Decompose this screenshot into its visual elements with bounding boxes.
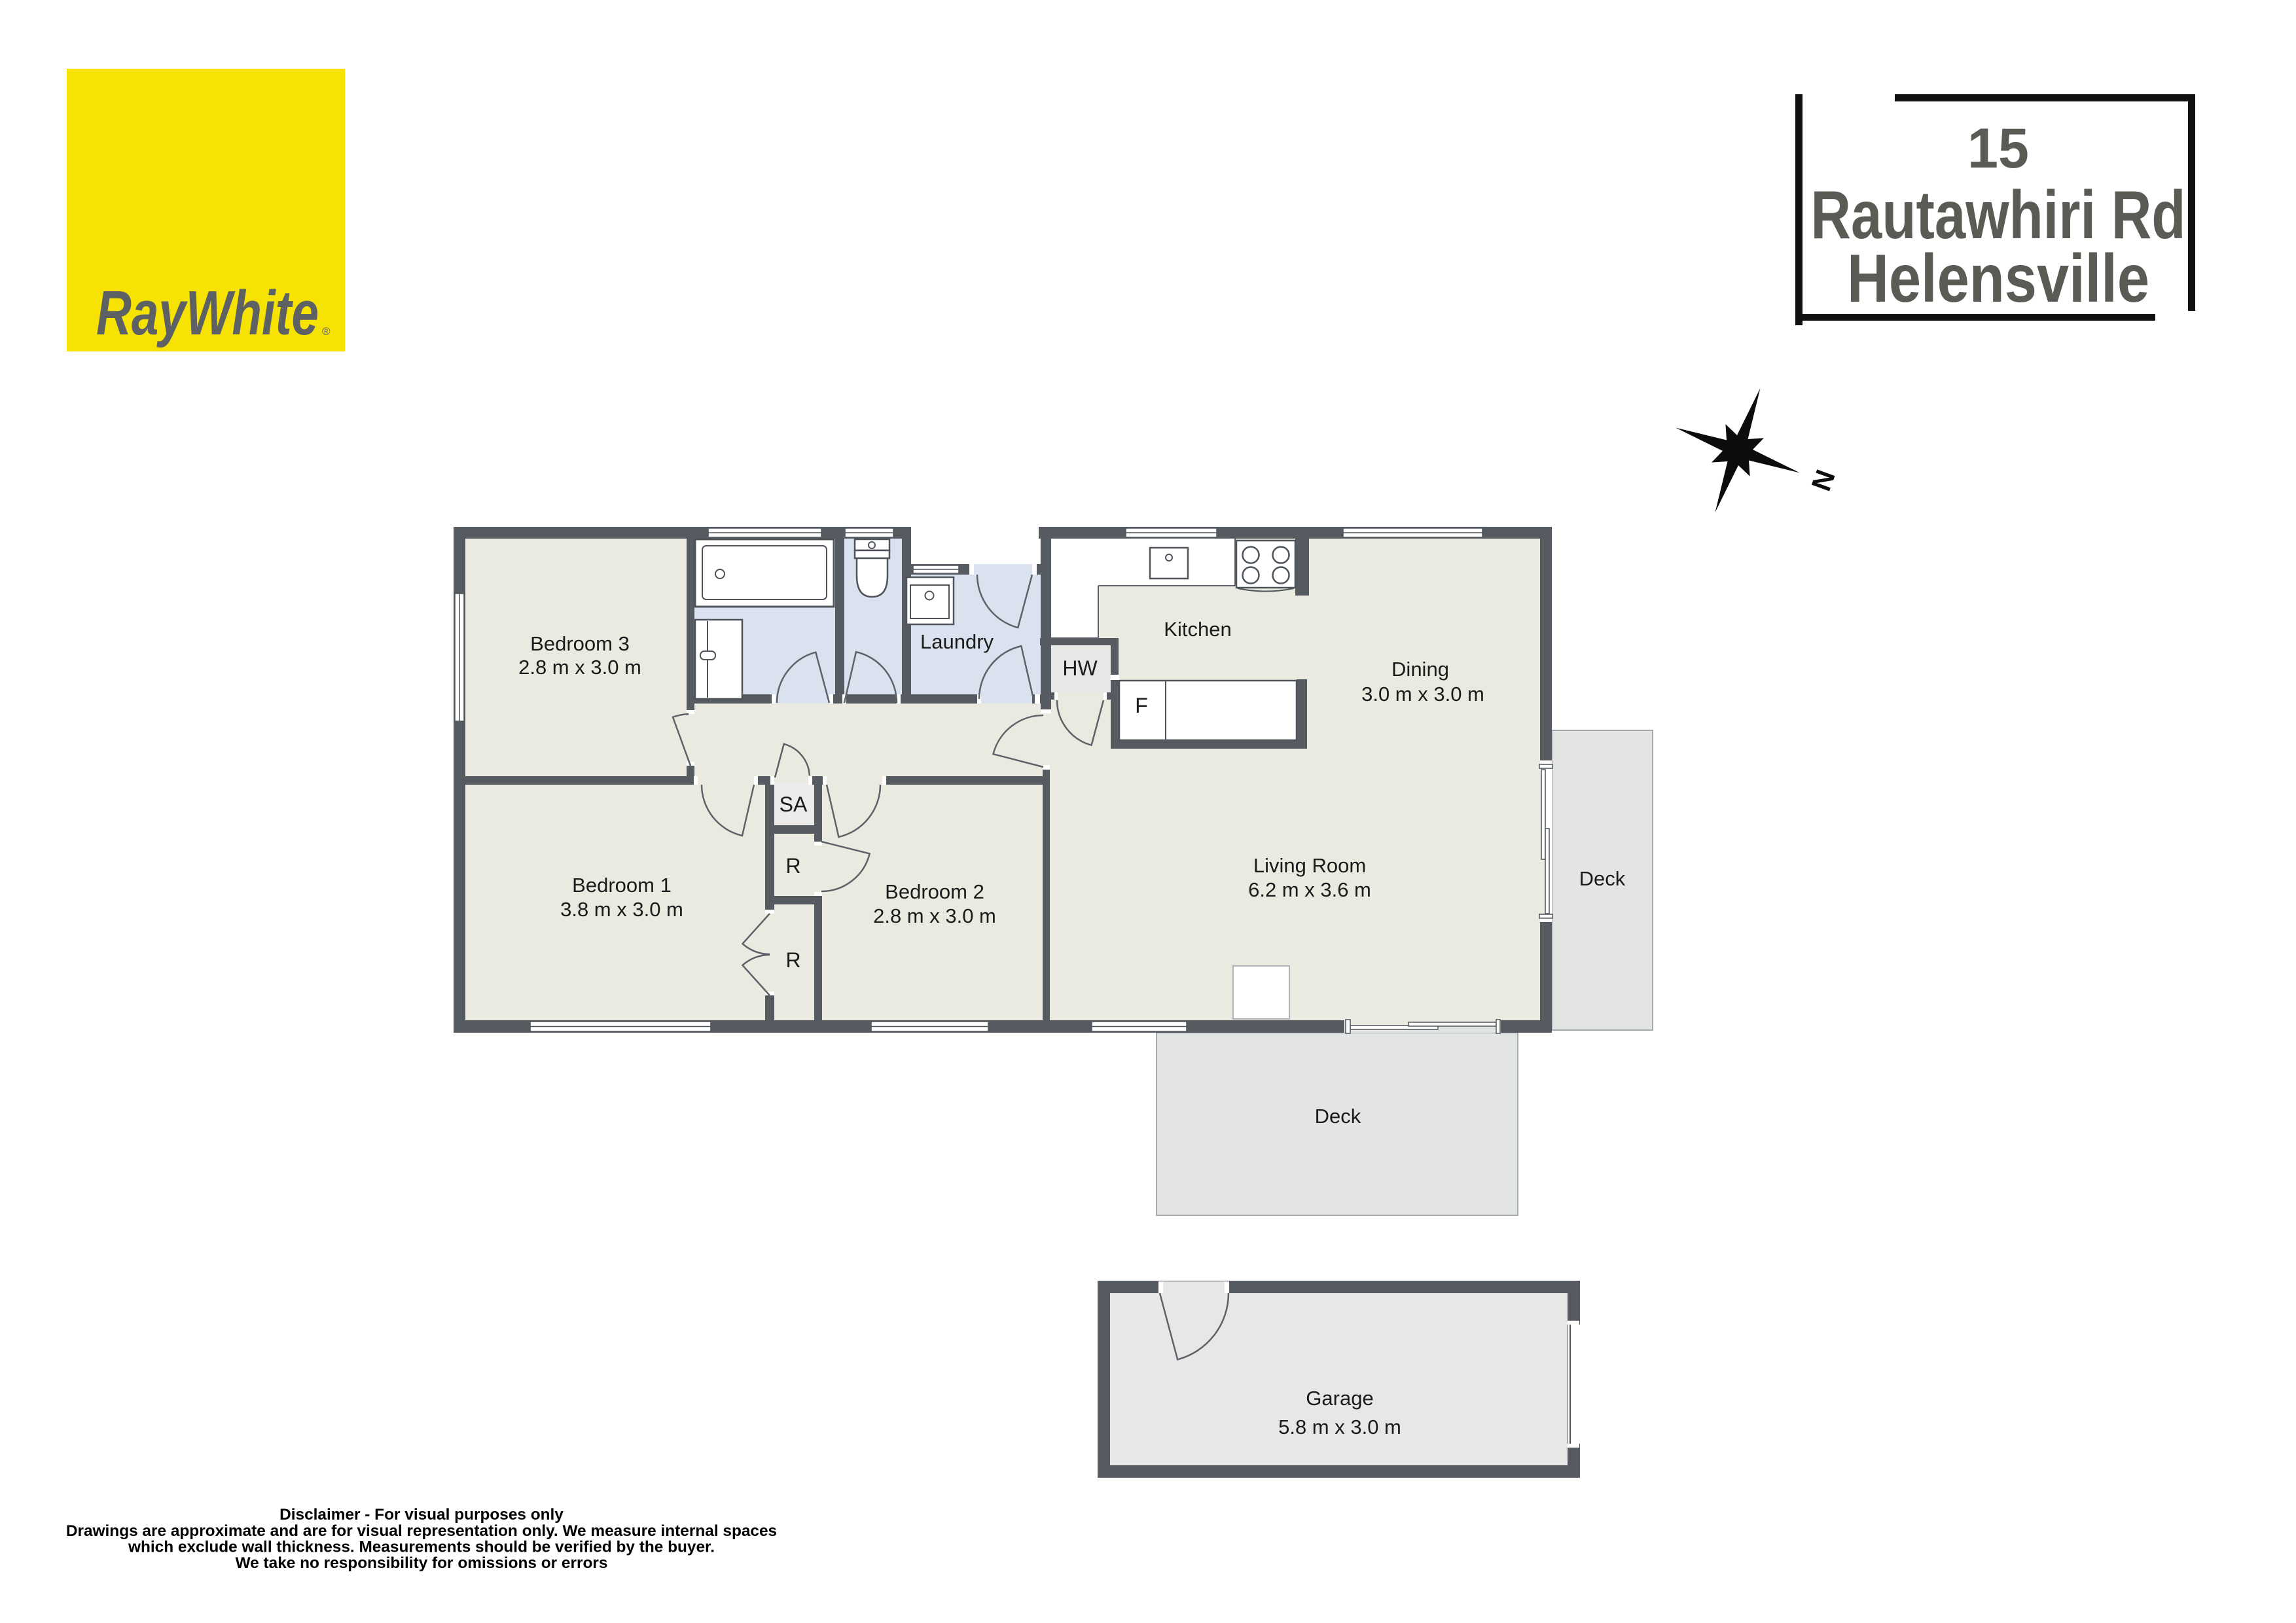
svg-text:RayWhite: RayWhite [96, 278, 319, 348]
svg-text:Kitchen: Kitchen [1164, 618, 1231, 641]
svg-text:Bedroom 3: Bedroom 3 [530, 632, 630, 655]
svg-text:Deck: Deck [1315, 1105, 1361, 1128]
svg-text:®: ® [322, 325, 331, 338]
svg-text:Garage: Garage [1306, 1387, 1373, 1410]
svg-text:3.0 m x 3.0 m: 3.0 m x 3.0 m [1361, 683, 1484, 705]
svg-text:6.2 m x 3.6 m: 6.2 m x 3.6 m [1248, 878, 1371, 901]
svg-text:F: F [1135, 694, 1148, 717]
svg-text:5.8 m x 3.0 m: 5.8 m x 3.0 m [1278, 1416, 1401, 1438]
svg-text:15: 15 [1967, 117, 2029, 180]
svg-text:Helensville: Helensville [1847, 241, 2149, 317]
svg-text:R: R [785, 948, 800, 972]
svg-text:Disclaimer - For visual purpos: Disclaimer - For visual purposes only [279, 1506, 564, 1524]
svg-text:Laundry: Laundry [920, 630, 994, 653]
svg-text:Deck: Deck [1579, 867, 1626, 890]
svg-text:Bedroom 2: Bedroom 2 [885, 880, 984, 903]
svg-text:Bedroom 1: Bedroom 1 [572, 874, 672, 897]
svg-text:which exclude wall thickness.: which exclude wall thickness. Measuremen… [128, 1539, 715, 1556]
svg-text:We take no responsibility for: We take no responsibility for omissions … [236, 1554, 608, 1572]
svg-text:2.8 m x 3.0 m: 2.8 m x 3.0 m [873, 904, 996, 927]
svg-text:3.8 m x 3.0 m: 3.8 m x 3.0 m [560, 898, 683, 921]
svg-text:2.8 m x 3.0 m: 2.8 m x 3.0 m [518, 656, 641, 679]
svg-text:HW: HW [1062, 656, 1098, 680]
svg-text:Dining: Dining [1391, 658, 1449, 681]
svg-text:Living Room: Living Room [1253, 854, 1366, 877]
svg-text:R: R [785, 854, 800, 878]
svg-text:Drawings are approximate and a: Drawings are approximate and are for vis… [66, 1522, 777, 1540]
svg-text:SA: SA [780, 793, 808, 816]
